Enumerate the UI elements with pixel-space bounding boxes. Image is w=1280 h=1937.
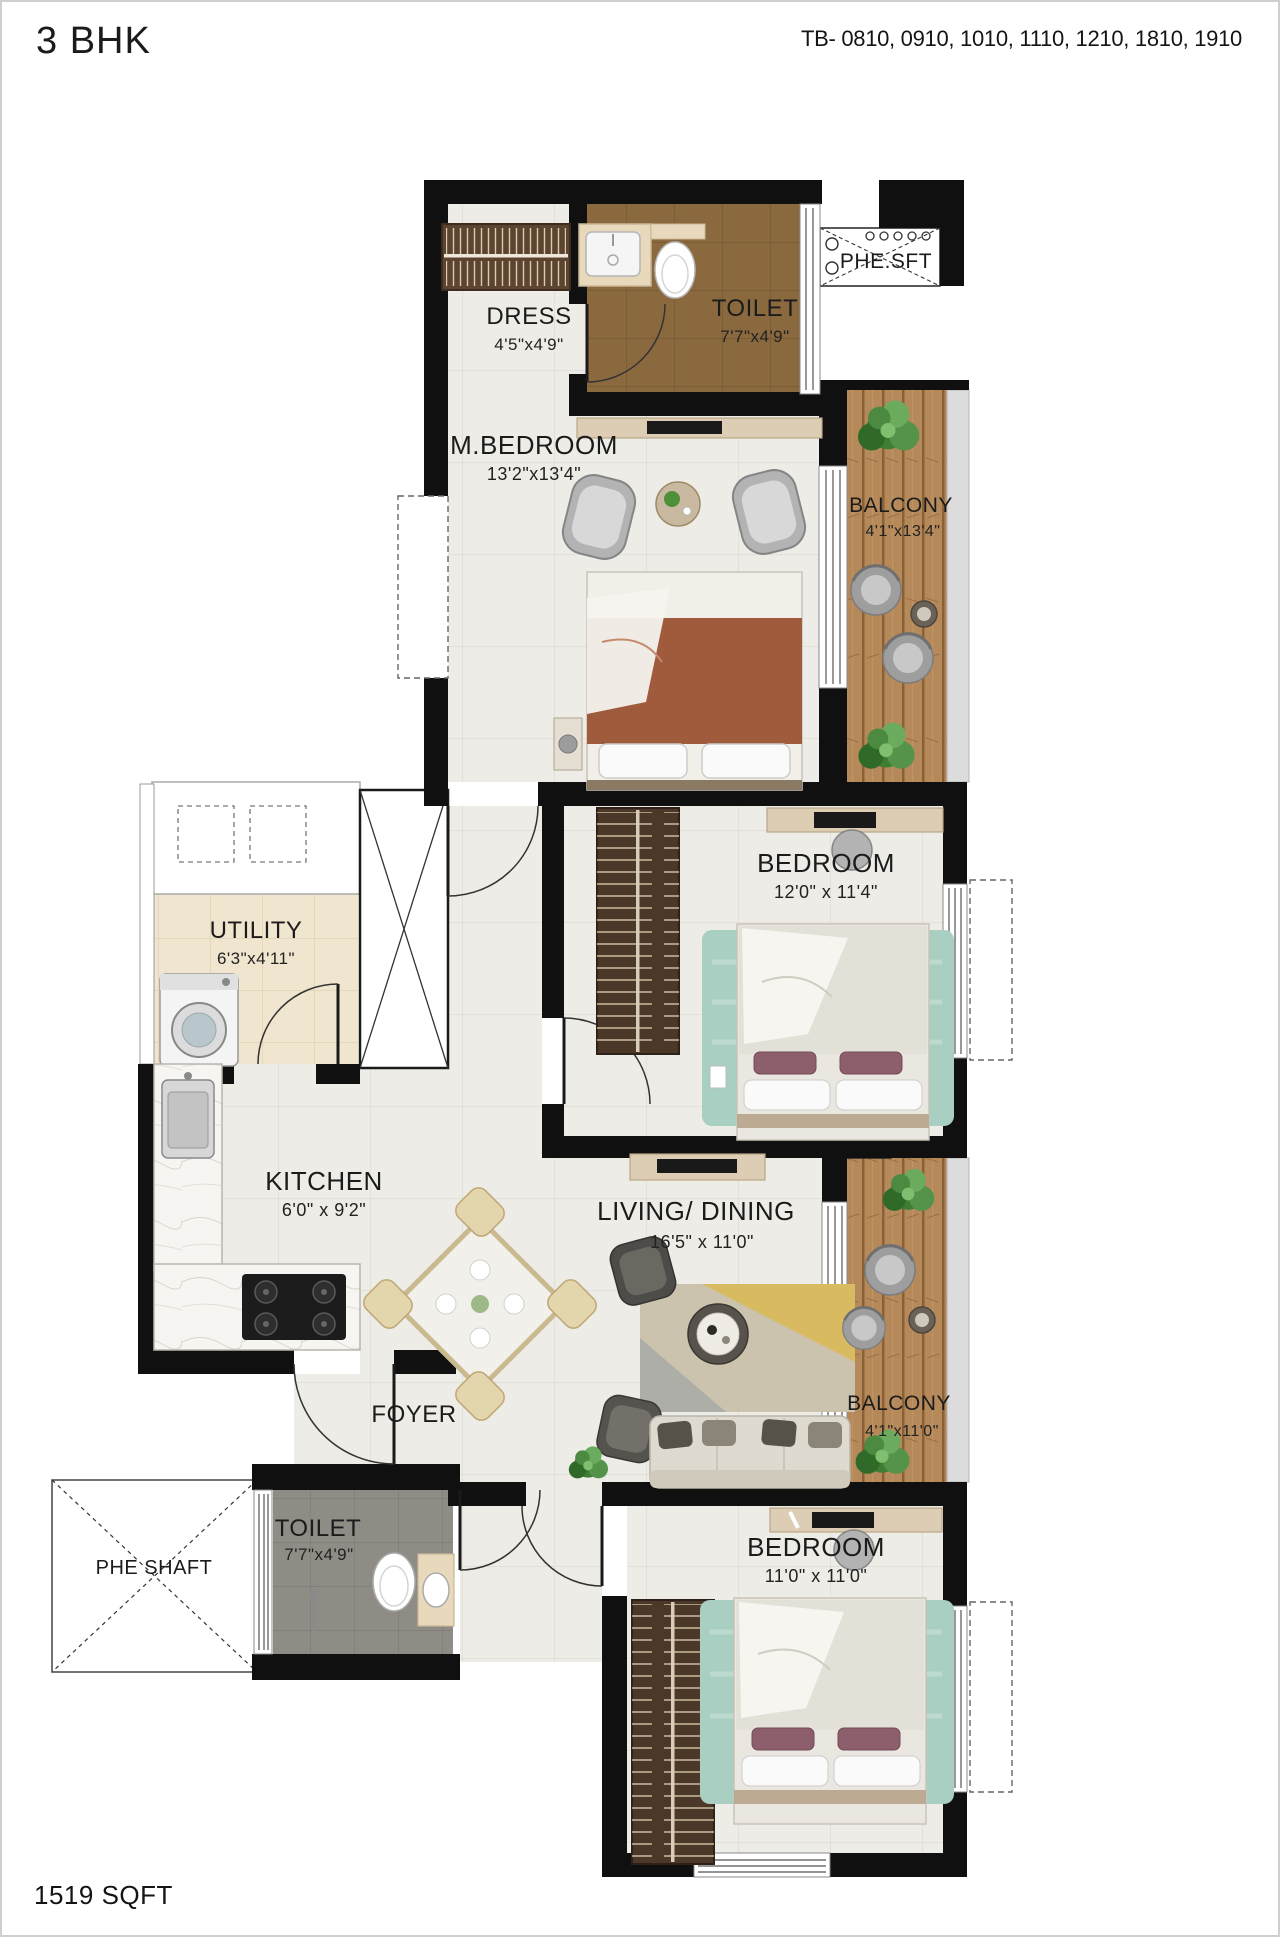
pillow bbox=[744, 1080, 830, 1110]
sofa-pillow bbox=[702, 1420, 736, 1446]
label-m-bedroom: M.BEDROOM bbox=[450, 430, 618, 460]
tv-icon bbox=[657, 1159, 737, 1173]
bed bbox=[737, 924, 929, 1140]
svg-text:6'0" x 9'2": 6'0" x 9'2" bbox=[282, 1200, 366, 1220]
pillow bbox=[836, 1080, 922, 1110]
accent-pillow bbox=[838, 1728, 900, 1750]
svg-text:4'5"x4'9": 4'5"x4'9" bbox=[494, 335, 563, 354]
kitchen-sink bbox=[162, 1072, 214, 1158]
balcony-chair bbox=[865, 1245, 915, 1295]
label-balcony-top: BALCONY bbox=[849, 494, 953, 517]
sofa-pillow bbox=[808, 1422, 842, 1448]
label-phe-shaft: PHE SHAFT bbox=[96, 1557, 213, 1579]
bed bbox=[734, 1598, 926, 1824]
balcony-chair bbox=[883, 633, 933, 683]
floor-plan: DRESS 4'5"x4'9" TOILET 7'7"x4'9" PHE.SFT… bbox=[2, 2, 1280, 1937]
balcony-top-railing bbox=[947, 390, 969, 782]
svg-text:16'5" x 11'0": 16'5" x 11'0" bbox=[650, 1232, 754, 1252]
balcony-mid-railing bbox=[947, 1158, 969, 1482]
label-toilet-top: TOILET bbox=[712, 295, 799, 322]
toilet-bottom-window bbox=[254, 1490, 272, 1654]
stove-icon bbox=[242, 1274, 346, 1340]
svg-text:13'2"x13'4": 13'2"x13'4" bbox=[487, 464, 581, 484]
label-living-dining: LIVING/ DINING bbox=[597, 1196, 795, 1226]
master-bed bbox=[587, 572, 802, 790]
tv-icon bbox=[647, 421, 722, 434]
washing-machine bbox=[160, 974, 238, 1066]
svg-text:7'7"x4'9": 7'7"x4'9" bbox=[720, 327, 789, 346]
svg-text:4'1"x11'0": 4'1"x11'0" bbox=[865, 1423, 939, 1440]
pillow bbox=[702, 744, 790, 778]
label-toilet-bottom: TOILET bbox=[275, 1515, 362, 1542]
label-kitchen: KITCHEN bbox=[265, 1166, 383, 1196]
sofa-pillow bbox=[761, 1419, 797, 1448]
svg-text:4'1"x13'4": 4'1"x13'4" bbox=[866, 523, 941, 540]
corridor-floor bbox=[460, 1506, 602, 1662]
sofa bbox=[650, 1416, 850, 1488]
bedroom-door-opening-floor bbox=[526, 1482, 602, 1506]
label-phe-sft: PHE.SFT bbox=[840, 250, 932, 273]
wc-icon bbox=[655, 242, 695, 298]
balcony-chair bbox=[851, 565, 901, 615]
svg-text:6'3"x4'11": 6'3"x4'11" bbox=[217, 949, 295, 968]
svg-text:7'7"x4'9": 7'7"x4'9" bbox=[284, 1545, 353, 1564]
label-balcony-mid: BALCONY bbox=[847, 1392, 951, 1415]
pillow bbox=[742, 1756, 828, 1786]
bedroom-bottom-bay bbox=[970, 1602, 1012, 1792]
label-dress: DRESS bbox=[486, 303, 571, 330]
balcony-chair bbox=[843, 1307, 886, 1350]
bedroom-mid-bay bbox=[970, 880, 1012, 1060]
living-rug bbox=[640, 1284, 855, 1412]
sofa-pillow bbox=[657, 1420, 694, 1449]
label-utility: UTILITY bbox=[210, 917, 303, 944]
laptop-icon bbox=[812, 1512, 874, 1528]
floor-plan-page: 3 BHK TB- 0810, 0910, 1010, 1110, 1210, … bbox=[0, 0, 1280, 1937]
bedside-deco bbox=[710, 1066, 726, 1088]
accent-pillow bbox=[754, 1052, 816, 1074]
dress-wardrobe bbox=[442, 224, 570, 290]
label-bedroom-bottom: BEDROOM bbox=[747, 1532, 885, 1562]
laptop-icon bbox=[814, 812, 876, 828]
label-bedroom-mid: BEDROOM bbox=[757, 848, 895, 878]
svg-text:12'0" x 11'4": 12'0" x 11'4" bbox=[774, 882, 878, 902]
svg-text:11'0" x 11'0": 11'0" x 11'0" bbox=[765, 1566, 868, 1586]
master-bedroom-bay bbox=[398, 496, 448, 678]
utility-items bbox=[160, 974, 238, 1066]
duct-shaft bbox=[360, 790, 448, 1068]
toilet-top-window bbox=[800, 204, 820, 394]
wc-icon bbox=[373, 1553, 415, 1611]
sink-basin bbox=[423, 1573, 449, 1607]
pillow bbox=[599, 744, 687, 778]
hallway-floor bbox=[448, 806, 542, 1158]
pillow bbox=[834, 1756, 920, 1786]
accent-pillow bbox=[752, 1728, 814, 1750]
wardrobe bbox=[597, 808, 679, 1054]
accent-pillow bbox=[840, 1052, 902, 1074]
label-foyer: FOYER bbox=[371, 1401, 456, 1428]
master-balcony-window bbox=[819, 466, 847, 688]
